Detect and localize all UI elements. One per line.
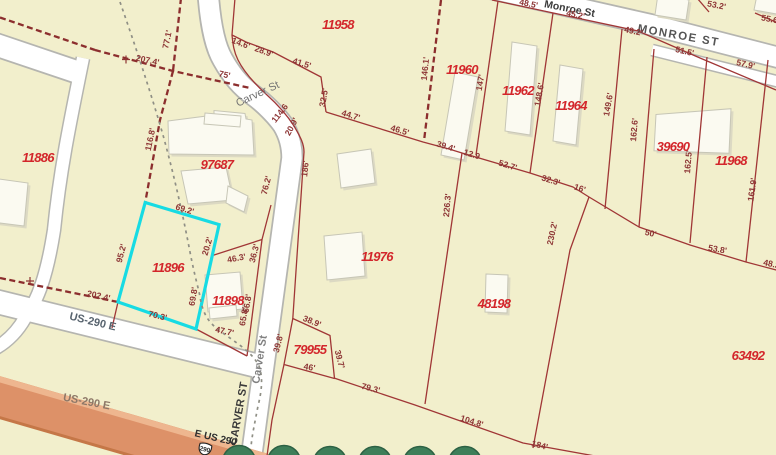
svg-text:39690: 39690 <box>657 139 691 154</box>
svg-text:11964: 11964 <box>555 98 588 113</box>
svg-text:11976: 11976 <box>361 249 394 264</box>
svg-text:11960: 11960 <box>446 62 479 77</box>
svg-text:48198: 48198 <box>477 296 512 311</box>
svg-text:11958: 11958 <box>322 17 355 32</box>
svg-text:186': 186' <box>299 160 311 177</box>
svg-text:79955: 79955 <box>294 342 328 357</box>
svg-text:11886: 11886 <box>22 150 55 165</box>
svg-text:11896: 11896 <box>152 260 185 275</box>
svg-text:11962: 11962 <box>502 83 535 98</box>
svg-text:97687: 97687 <box>201 157 235 172</box>
svg-text:46': 46' <box>303 361 316 373</box>
svg-text:63492: 63492 <box>732 348 766 363</box>
svg-text:11898: 11898 <box>212 293 245 308</box>
svg-text:226.3': 226.3' <box>441 193 453 217</box>
svg-text:11968: 11968 <box>715 153 748 168</box>
svg-text:162.6': 162.6' <box>628 118 640 142</box>
